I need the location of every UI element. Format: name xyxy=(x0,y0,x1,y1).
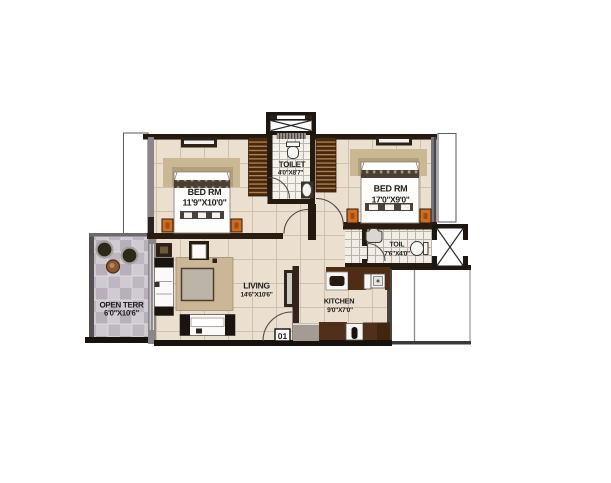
svg-text:11'9"X10'0": 11'9"X10'0" xyxy=(183,198,227,208)
svg-text:4'0"X8'7": 4'0"X8'7" xyxy=(278,170,304,177)
svg-text:BED RM: BED RM xyxy=(374,184,408,194)
svg-text:LIVING: LIVING xyxy=(243,281,270,291)
svg-text:7'6"X4'0": 7'6"X4'0" xyxy=(384,251,410,258)
svg-text:BED RM: BED RM xyxy=(188,187,222,197)
svg-text:01: 01 xyxy=(278,331,288,341)
svg-text:TOIL: TOIL xyxy=(389,242,405,249)
svg-text:TOILET: TOILET xyxy=(279,160,306,169)
svg-text:14'6"X10'6": 14'6"X10'6" xyxy=(241,292,273,299)
svg-text:KITCHEN: KITCHEN xyxy=(324,297,354,306)
svg-text:9'0"X7'0": 9'0"X7'0" xyxy=(327,307,353,314)
svg-text:6'0"X10'6": 6'0"X10'6" xyxy=(104,309,140,318)
